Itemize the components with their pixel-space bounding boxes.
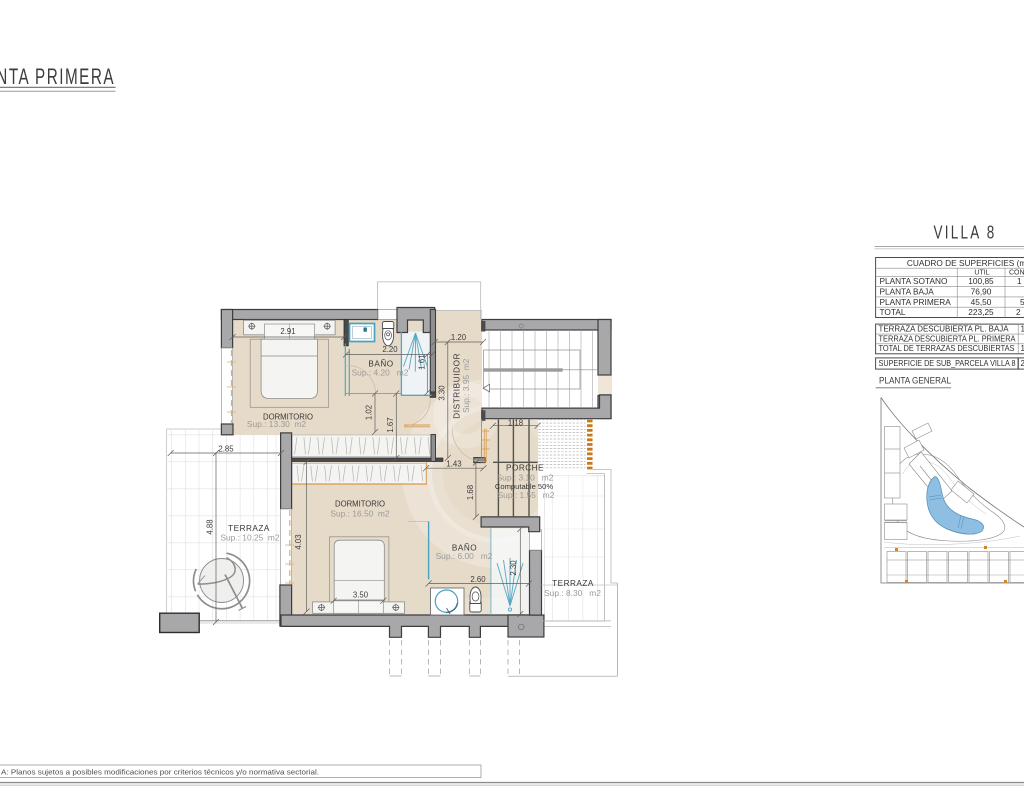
- svg-text:4.88: 4.88: [206, 519, 215, 534]
- svg-text:76,90: 76,90: [971, 287, 992, 297]
- svg-text:45,50: 45,50: [971, 297, 992, 307]
- svg-text:5: 5: [1020, 297, 1024, 307]
- svg-text:100,85: 100,85: [968, 276, 994, 286]
- svg-text:PLANTA SOTANO: PLANTA SOTANO: [880, 276, 948, 286]
- svg-text:2: 2: [1021, 359, 1024, 368]
- svg-text:PORCHE: PORCHE: [506, 464, 544, 473]
- svg-text:Sup.: 3.10 m2: Sup.: 3.10 m2: [497, 473, 554, 483]
- svg-text:VILLA 8: VILLA 8: [934, 223, 997, 243]
- svg-text:2.20: 2.20: [382, 345, 398, 354]
- svg-text:1: 1: [1021, 344, 1024, 353]
- svg-text:2.60: 2.60: [470, 575, 486, 584]
- svg-text:223,25: 223,25: [968, 307, 994, 317]
- svg-text:TOTAL DE TERRAZAS DESCUBIERTAS: TOTAL DE TERRAZAS DESCUBIERTAS: [879, 344, 1016, 353]
- svg-text:Sup.: 8.30 m2: Sup.: 8.30 m2: [544, 588, 601, 598]
- svg-text:TERRAZA DESCUBIERTA PL. PRIMER: TERRAZA DESCUBIERTA PL. PRIMERA: [879, 334, 1017, 343]
- svg-text:A: Planos sujetos a posibles m: A: Planos sujetos a posibles modificacio…: [1, 767, 319, 776]
- svg-text:3.50: 3.50: [353, 591, 369, 600]
- svg-text:1: 1: [1017, 276, 1022, 286]
- svg-text:TERRAZA DESCUBIERTA PL. BAJA: TERRAZA DESCUBIERTA PL. BAJA: [879, 325, 1010, 334]
- svg-text:Sup.: 1.55 m2: Sup.: 1.55 m2: [498, 490, 555, 500]
- svg-text:1.43: 1.43: [446, 460, 461, 469]
- svg-text:2.91: 2.91: [280, 327, 295, 336]
- svg-text:2.85: 2.85: [218, 445, 234, 454]
- svg-text:1.61: 1.61: [418, 354, 427, 369]
- svg-text:TOTAL: TOTAL: [880, 307, 906, 317]
- svg-text:1.67: 1.67: [386, 417, 395, 432]
- svg-text:Sup.: 6.00 m2: Sup.: 6.00 m2: [436, 551, 493, 561]
- svg-text:2.30: 2.30: [509, 560, 518, 576]
- svg-text:3.30: 3.30: [438, 385, 447, 401]
- svg-text:SUPERFICIE DE SUB_PARCELA VILL: SUPERFICIE DE SUB_PARCELA VILLA 8: [879, 359, 1016, 368]
- svg-text:1.68: 1.68: [466, 485, 475, 500]
- svg-text:Sup.: 16.50 m2: Sup.: 16.50 m2: [330, 509, 389, 519]
- svg-text:PLANTA BAJA: PLANTA BAJA: [880, 287, 935, 297]
- svg-text:Sup.: 13.30 m2: Sup.: 13.30 m2: [247, 419, 306, 429]
- svg-text:TERRAZA: TERRAZA: [552, 579, 594, 588]
- svg-text:Sup.: 4.20 m2: Sup.: 4.20 m2: [352, 368, 409, 378]
- svg-text:Sup.: 10.25 m2: Sup.: 10.25 m2: [220, 533, 279, 543]
- svg-text:1.02: 1.02: [365, 405, 374, 420]
- svg-text:1: 1: [1021, 325, 1024, 334]
- svg-text:PLANTA PRIMERA: PLANTA PRIMERA: [880, 297, 952, 307]
- svg-text:1.20: 1.20: [451, 333, 467, 342]
- svg-text:CUADRO DE SUPERFICIES (m²: CUADRO DE SUPERFICIES (m²: [907, 258, 1024, 268]
- svg-text:PLANTA PRIMERA: PLANTA PRIMERA: [0, 64, 115, 89]
- svg-text:4.03: 4.03: [294, 534, 303, 549]
- svg-text:DORMITORIO: DORMITORIO: [335, 500, 385, 509]
- svg-text:2: 2: [1016, 307, 1021, 317]
- svg-text:Sup.: 3.95 m2: Sup.: 3.95 m2: [461, 358, 471, 413]
- svg-text:PLANTA GENERAL: PLANTA GENERAL: [879, 376, 951, 386]
- svg-text:1.18: 1.18: [508, 419, 523, 428]
